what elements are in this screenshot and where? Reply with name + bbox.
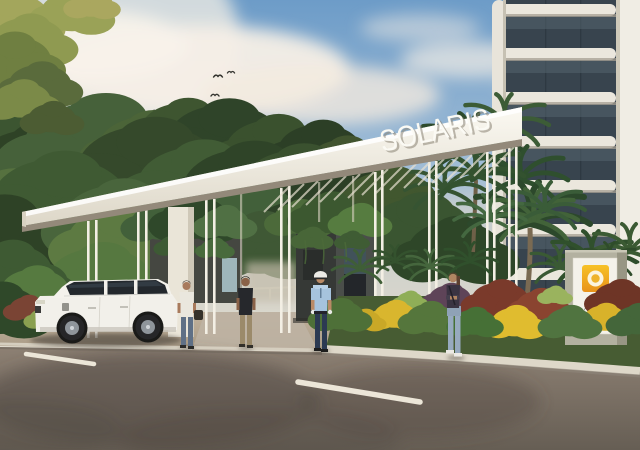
vine-wall-glass-door xyxy=(222,258,237,292)
duffel-bag xyxy=(194,310,203,320)
architectural-rendering: SOLARIS SOLARIS SOLARIS xyxy=(0,0,640,450)
road xyxy=(0,344,640,450)
guard-belt xyxy=(314,311,327,314)
suv-front-wheel xyxy=(57,313,88,344)
suv-rear-wheel xyxy=(133,312,164,343)
suv-headlight xyxy=(36,300,45,304)
